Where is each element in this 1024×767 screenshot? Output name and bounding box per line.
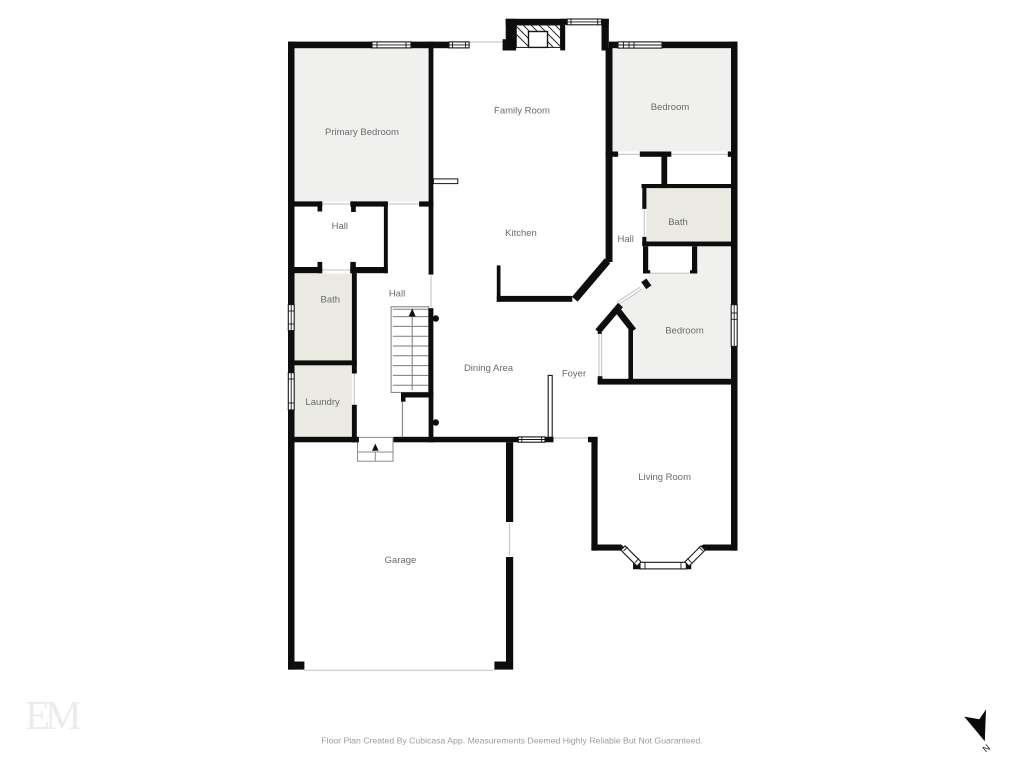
svg-text:Living Room: Living Room	[638, 472, 691, 483]
svg-text:Floor Plan Created By Cubicasa: Floor Plan Created By Cubicasa App. Meas…	[321, 736, 702, 746]
svg-text:Bedroom: Bedroom	[651, 102, 690, 113]
svg-text:Foyer: Foyer	[562, 369, 586, 380]
svg-text:Dining Area: Dining Area	[464, 363, 514, 374]
svg-text:EM: EM	[25, 692, 81, 738]
svg-text:Bath: Bath	[668, 217, 688, 228]
svg-text:Hall: Hall	[618, 234, 634, 245]
svg-text:Garage: Garage	[385, 555, 417, 566]
svg-text:Hall: Hall	[332, 221, 348, 232]
svg-text:Laundry: Laundry	[305, 397, 340, 408]
svg-text:Kitchen: Kitchen	[505, 228, 537, 239]
svg-text:Family Room: Family Room	[494, 106, 550, 117]
svg-text:Bedroom: Bedroom	[665, 326, 704, 337]
svg-text:Hall: Hall	[389, 289, 405, 300]
svg-text:Primary Bedroom: Primary Bedroom	[325, 127, 399, 138]
svg-text:Bath: Bath	[321, 295, 341, 306]
